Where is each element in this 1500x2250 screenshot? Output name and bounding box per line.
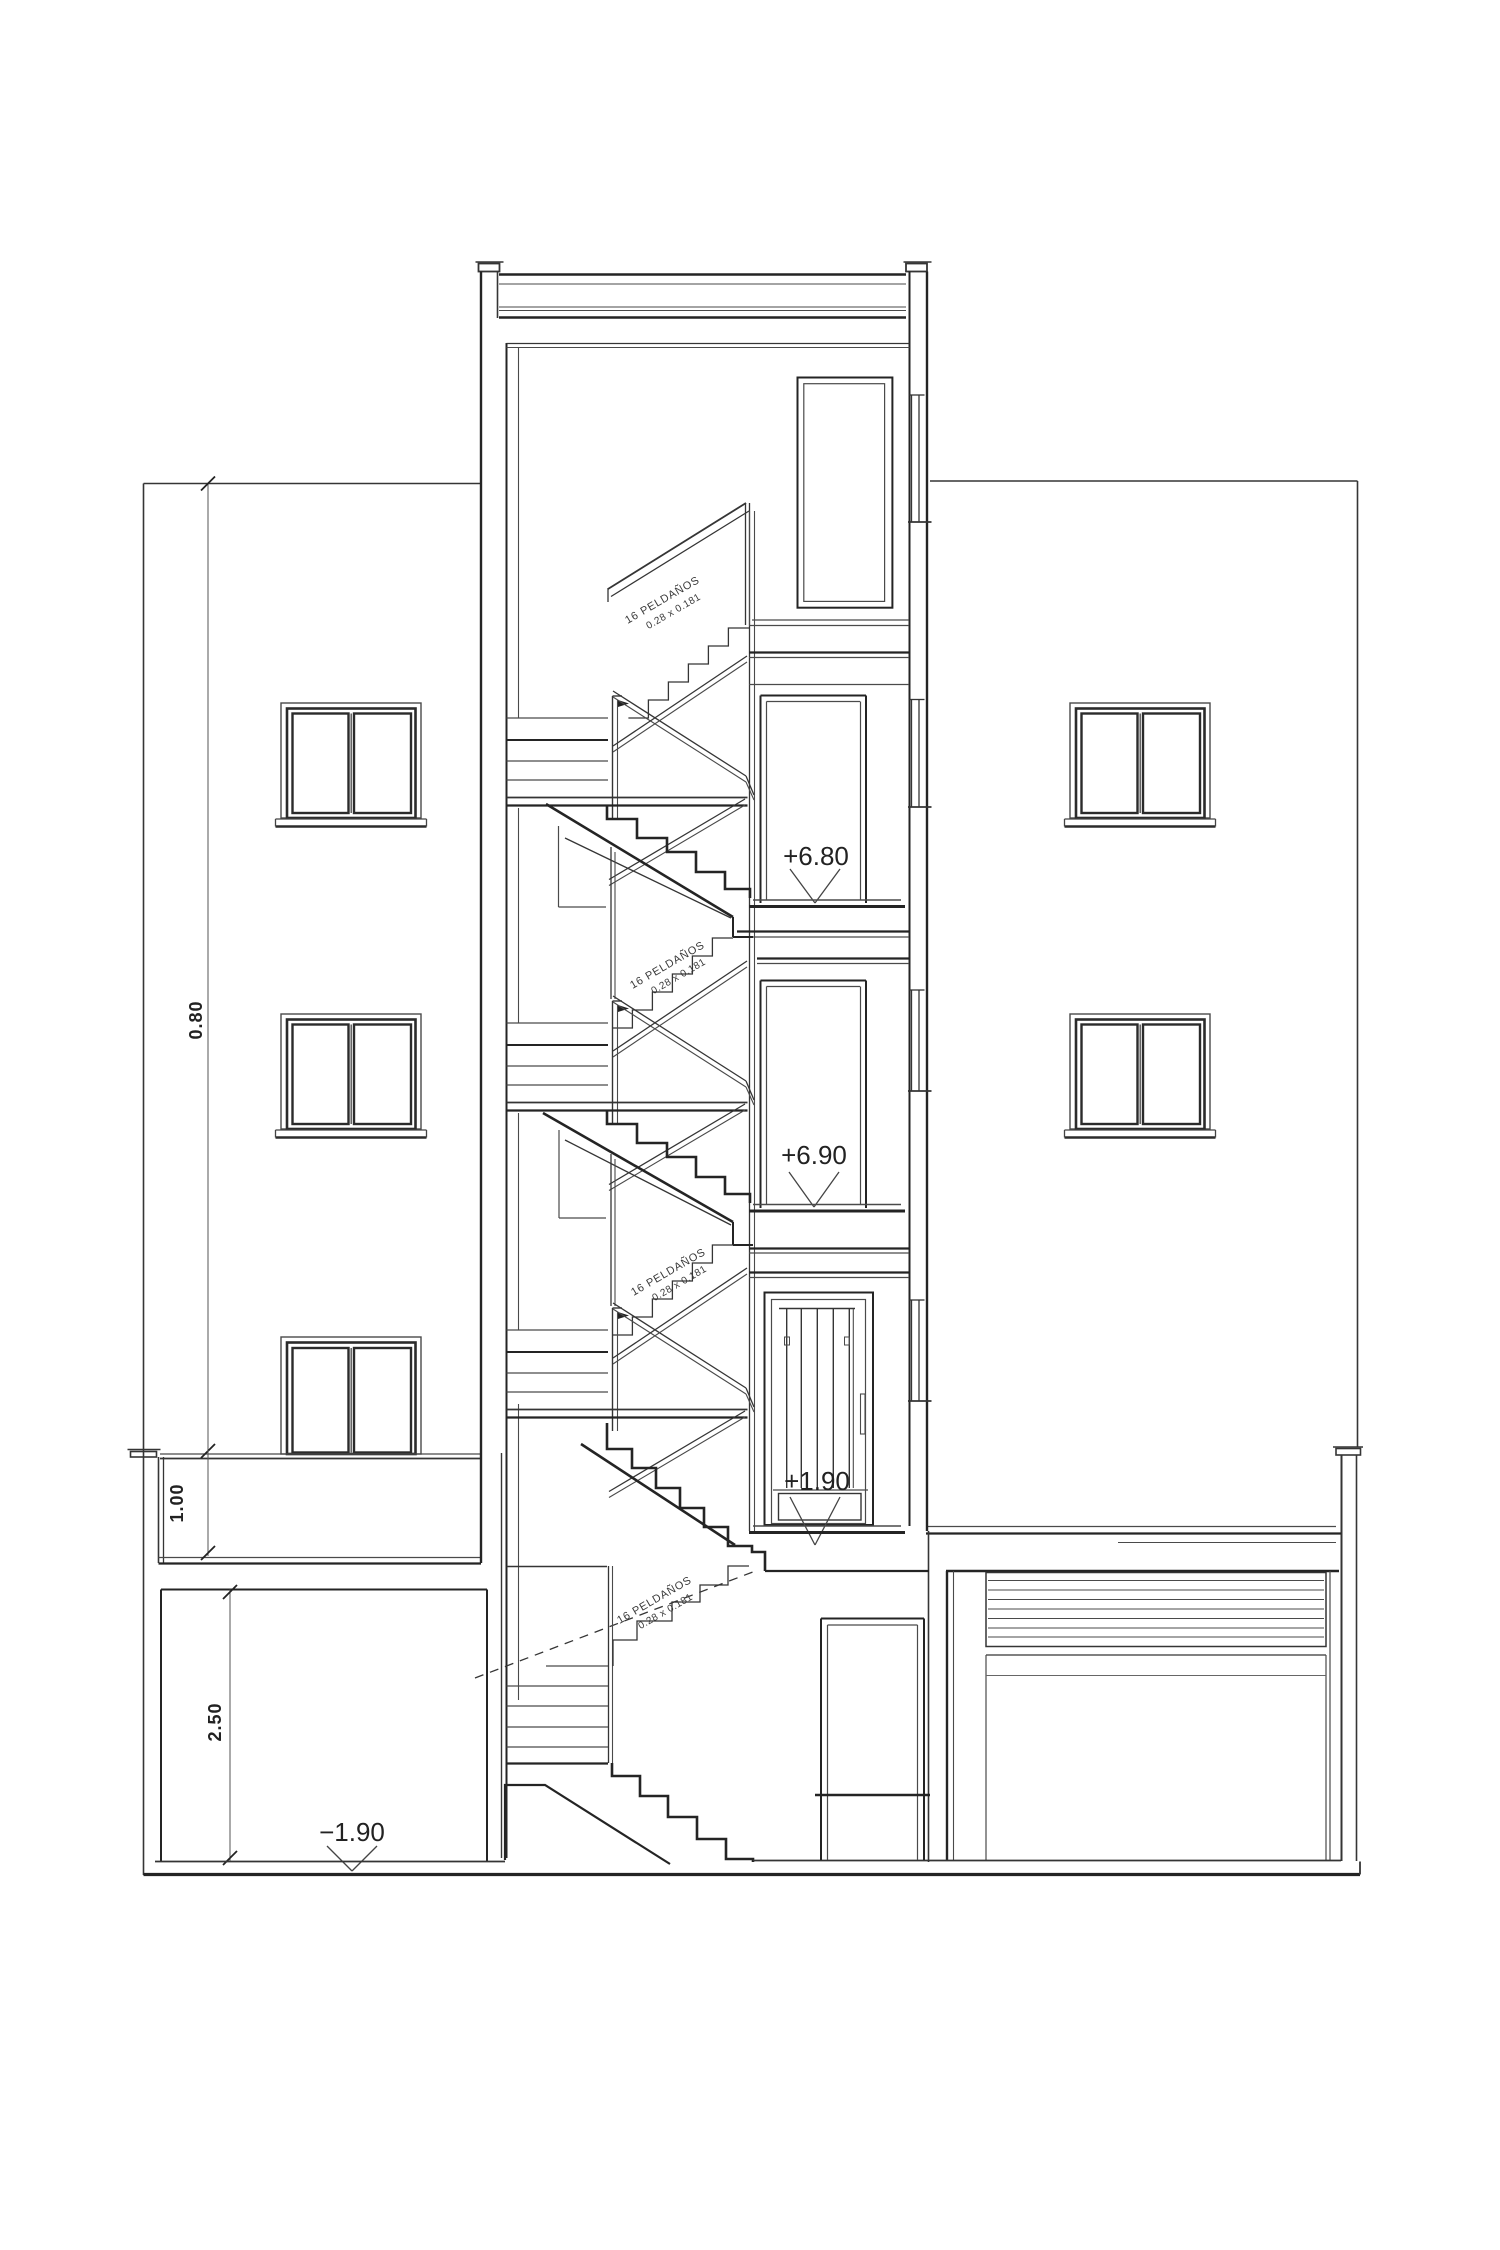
svg-text:+1.90: +1.90 <box>784 1466 850 1496</box>
svg-text:0.80: 0.80 <box>186 1000 206 1039</box>
svg-text:−1.90: −1.90 <box>319 1817 385 1847</box>
svg-text:2.50: 2.50 <box>205 1702 225 1741</box>
svg-text:+6.90: +6.90 <box>781 1140 847 1170</box>
svg-text:1.00: 1.00 <box>167 1483 187 1522</box>
svg-text:+6.80: +6.80 <box>783 841 849 871</box>
